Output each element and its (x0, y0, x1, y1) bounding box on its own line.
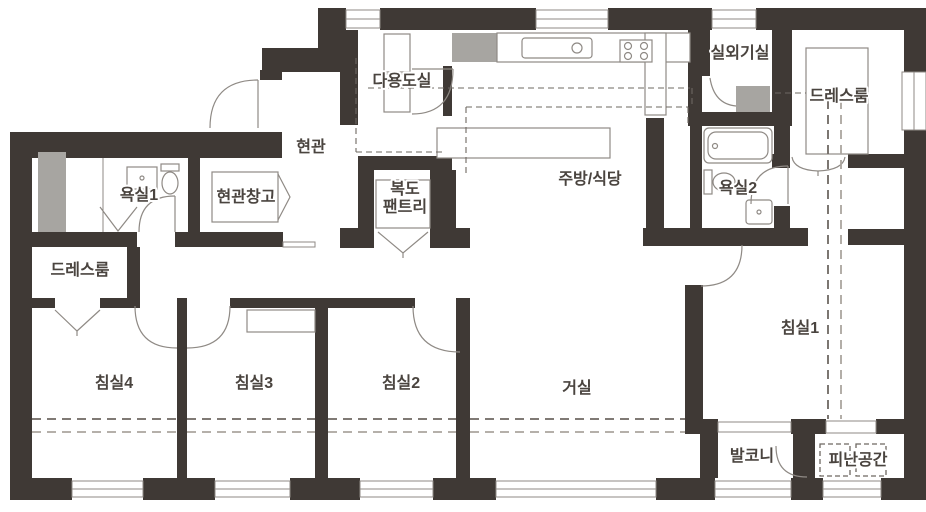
bathroom2-fixtures (704, 128, 772, 224)
room-label-bathroom1: 욕실1 (120, 186, 158, 204)
duct-shaft-left (38, 152, 66, 232)
room-label-bedroom2: 침실2 (382, 373, 420, 392)
dining-table (437, 128, 610, 158)
floorplan-drawing: 다용도실 실외기실 드레스룸 현관 욕실1 현관창고 복도 팬트리 주방/식당 … (0, 0, 926, 512)
room-label-balcony: 발코니 (730, 447, 774, 465)
room-label-pantry-line1: 복도 (390, 180, 420, 198)
washbasin-1 (127, 167, 157, 189)
pantry-bifold (378, 232, 428, 258)
storage-folding-door (278, 174, 290, 220)
room-label-refuge: 피난공간 (829, 451, 888, 469)
floorplan: 다용도실 실외기실 드레스룸 현관 욕실1 현관창고 복도 팬트리 주방/식당 … (0, 0, 926, 512)
room-label-pantry-line2: 팬트리 (383, 198, 427, 216)
room-label-kitchen-dining: 주방/식당 (558, 170, 622, 188)
room-label-dressroom-right: 드레스룸 (810, 87, 869, 105)
entrance-step (283, 242, 315, 247)
toilet-1 (162, 172, 178, 194)
room-label-bedroom4: 침실4 (95, 373, 133, 392)
room-label-living: 거실 (562, 379, 591, 397)
toilet-2-tank (704, 170, 712, 194)
bathtub (704, 128, 772, 163)
gas-stove (620, 40, 652, 62)
bedroom3-door (187, 306, 230, 348)
washbasin-2 (746, 200, 772, 224)
dressroom-left-bifold (55, 310, 100, 336)
outdoor-unit-door (710, 78, 736, 106)
entrance-door (210, 80, 258, 128)
duct-shaft-kitchen (452, 33, 497, 62)
kitchen-counter (497, 33, 690, 115)
bedroom2-door (413, 306, 460, 352)
bedroom4-door (135, 306, 177, 348)
closet-bedroom3 (247, 310, 315, 332)
duct-shaft-outdoor (736, 86, 770, 112)
toilet-1-tank (161, 164, 179, 171)
room-label-entrance: 현관 (296, 137, 326, 156)
room-label-bedroom1: 침실1 (781, 318, 819, 337)
bedroom1-door (701, 245, 742, 286)
room-label-bedroom3: 침실3 (235, 373, 273, 392)
room-label-entrance-storage: 현관창고 (217, 187, 276, 206)
room-label-bathroom2: 욕실2 (719, 179, 757, 197)
room-label-utility: 다용도실 (373, 72, 432, 90)
room-label-outdoor-unit: 실외기실 (711, 44, 770, 62)
dressroom-right-door (792, 157, 845, 176)
room-label-dressroom-left: 드레스룸 (51, 261, 110, 279)
